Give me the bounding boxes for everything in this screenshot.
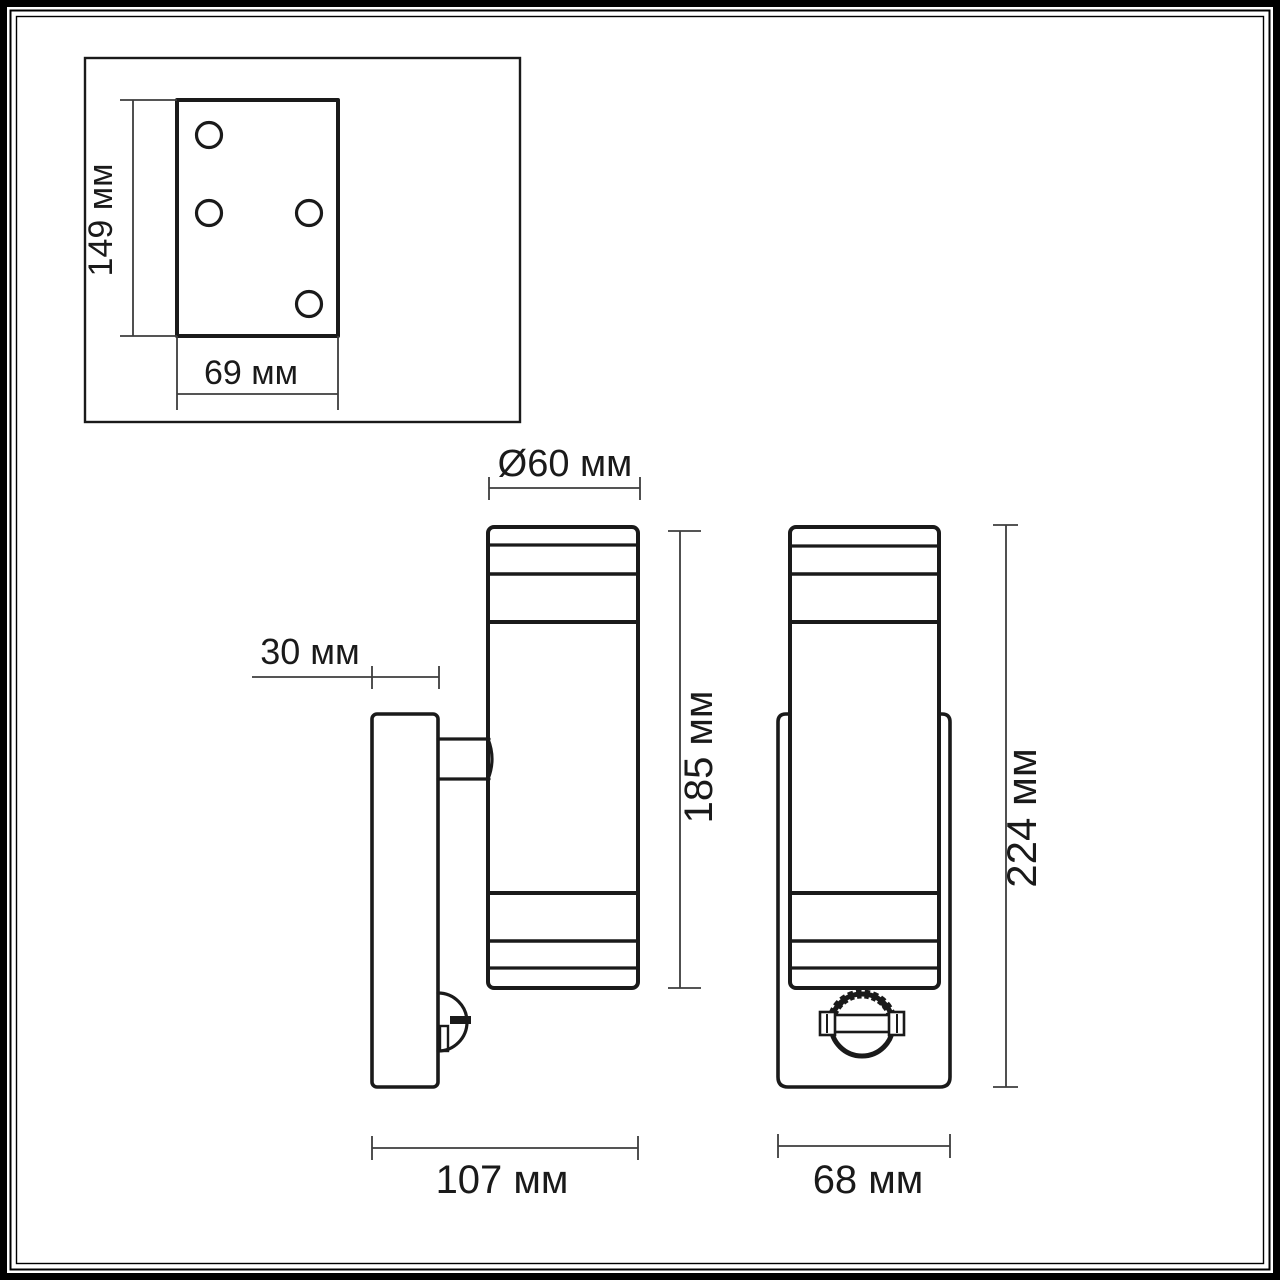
drawing-sheet: 149 мм 69 мм <box>0 0 1280 1280</box>
mounting-plate <box>177 100 338 336</box>
dim-plate-height-label: 149 мм <box>82 164 120 277</box>
dim-lamp-diameter: Ø60 мм <box>489 443 640 500</box>
dim-front-width-label: 68 мм <box>813 1158 924 1202</box>
dim-plate-depth-label: 30 мм <box>260 631 360 672</box>
dim-plate-width-label: 69 мм <box>204 354 298 392</box>
front-lamp-body <box>790 527 939 988</box>
mounting-hole <box>197 201 222 226</box>
dim-total-height: 224 мм <box>993 525 1045 1087</box>
dim-plate-width: 69 мм <box>177 336 338 410</box>
dim-plate-depth: 30 мм <box>252 631 439 689</box>
dim-plate-height: 149 мм <box>82 100 177 336</box>
side-view: 30 мм Ø60 мм 185 мм 107 мм <box>252 443 721 1202</box>
front-motion-sensor <box>820 994 904 1056</box>
dim-diameter-label: Ø60 мм <box>498 443 633 485</box>
inset-box <box>85 58 520 422</box>
technical-drawing-canvas: 149 мм 69 мм <box>0 0 1280 1280</box>
mounting-hole <box>197 123 222 148</box>
side-lamp-body <box>488 527 638 988</box>
side-wall-plate <box>372 714 438 1087</box>
dim-total-depth: 107 мм <box>372 1136 638 1202</box>
mounting-hole <box>297 292 322 317</box>
dim-body-height-label: 185 мм <box>677 691 721 824</box>
dim-body-height: 185 мм <box>668 531 721 988</box>
dim-front-width: 68 мм <box>778 1134 950 1202</box>
side-motion-sensor <box>438 993 471 1051</box>
front-view: 224 мм 68 мм <box>778 525 1045 1202</box>
dim-total-height-label: 224 мм <box>998 748 1045 888</box>
mounting-hole <box>297 201 322 226</box>
dim-total-depth-label: 107 мм <box>436 1158 569 1202</box>
side-mounting-arm <box>438 739 492 779</box>
mounting-plate-inset: 149 мм 69 мм <box>82 58 520 422</box>
sensor-lens-profile <box>440 1026 448 1051</box>
